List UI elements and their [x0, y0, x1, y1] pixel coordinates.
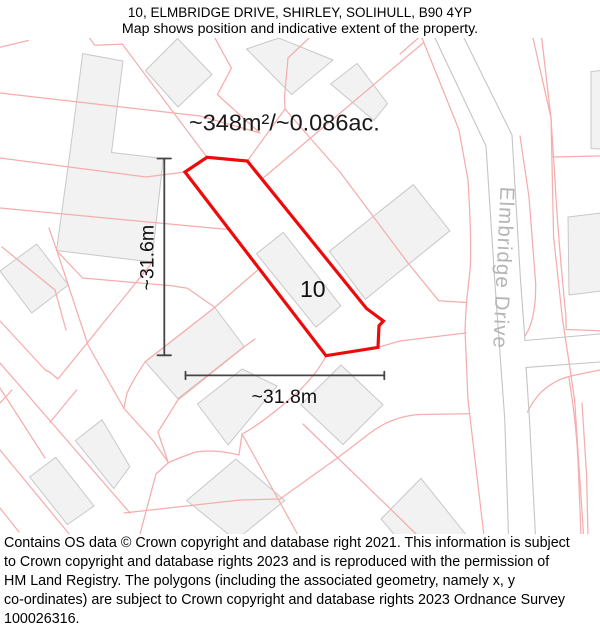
svg-text:Elmbridge Drive: Elmbridge Drive	[488, 186, 518, 349]
svg-text:~31.6m: ~31.6m	[137, 225, 159, 291]
svg-text:10: 10	[300, 276, 326, 302]
svg-text:~31.8m: ~31.8m	[252, 386, 318, 408]
svg-text:~348m²/~0.086ac.: ~348m²/~0.086ac.	[189, 110, 380, 136]
